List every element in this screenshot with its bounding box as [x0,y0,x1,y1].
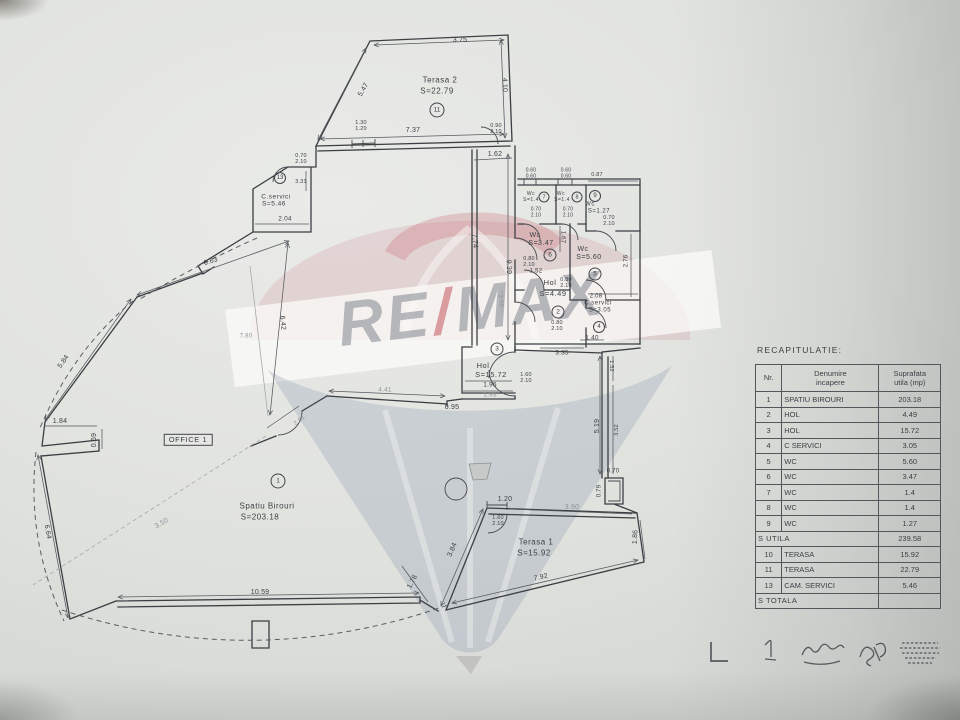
dim-corridor-wall: 7.74 [469,233,478,248]
dim-terasa1-door: 1.60 2.10 [492,515,504,527]
room-wc6-name: Wc [529,232,540,240]
room-number-2: 2 [552,306,565,319]
dim-terasa2-top: 3.75 [453,37,467,45]
room-cserv4-area: S=3.05 [589,308,611,315]
column-circle [445,478,467,500]
room-wc9-name: Wc [585,202,595,209]
dim-terasa2-door: 0.90 2.10 [490,123,502,135]
room-wc9-area: S=1.27 [588,209,610,216]
table-row: 6WC3.47 [756,469,941,485]
dim-left-7: 7.80 [240,334,252,341]
dim-left-6: 6.42 [277,315,286,330]
table-row: 4C SERVICI3.05 [756,438,941,454]
dim-cserv13-height: 3.31 [295,179,307,185]
dim-terasa2-right: 4.10 [500,78,508,93]
room-wc8-area: S=1.4 [554,198,570,204]
room-number-4: 4 [593,321,605,333]
dim-wc6-height: 1.67 [559,231,566,243]
room-number-5: 5 [589,268,602,281]
dim-terasa1-top: 3.90 [565,504,579,512]
dim-wc-window-2: 0.60 0.60 [561,168,572,179]
dim-wc7-door: 0.70 2.10 [531,207,542,218]
dim-corridor-width: 2.55 [496,294,504,307]
table-row: 1SPATIU BIROURI203.18 [756,392,941,408]
dim-terasa2-bottom: 7.37 [406,127,420,135]
room-cserv4-name: C.servici [584,301,612,308]
room-wc6-area: S=3.47 [528,240,553,248]
room-spatiu-area: S=203.18 [241,514,279,523]
table-row: 7WC1.4 [756,485,941,501]
dim-cserv13-width: 2.04 [278,215,291,222]
room-hol3-area: S=15.72 [475,371,507,379]
header-name: Denumire incapere [782,365,879,392]
room-cserv13-area: S=5.46 [262,200,286,207]
table-row: 5WC5.60 [756,454,941,470]
dim-wc9-top: 0.87 [591,172,603,178]
dim-step: 0.95 [445,404,459,412]
recap-table: RECAPITULATIE: Nr. Denumire incapere Sup… [755,345,947,609]
room-number-13: 13 [274,172,286,184]
dim-wc8-door: 0.70 2.10 [563,207,574,218]
room-terasa2-area: S=22.79 [420,88,454,97]
dim-wc9-door: 0.70 2.10 [603,215,615,227]
room-spatiu-name: Spatiu Birouri [239,503,294,512]
table-row: 9WC1.27 [756,516,941,532]
room-number-11: 11 [430,103,445,118]
dim-rightwall-2: 5.19 [594,419,602,433]
floorplan-photo: RE/MAX [0,0,960,720]
dim-terasa2-window: 1.30 1.20 [355,120,367,132]
room-wc5-area: S=5.60 [576,254,601,262]
dim-wc5-height: 2.76 [624,255,631,267]
table-row: 10TERASA15.92 [756,547,941,563]
room-number-9: 9 [589,190,601,202]
room-number-6: 6 [544,249,557,262]
dim-hol2-width: 1.52 [530,269,542,276]
room-number-7: 7 [539,192,550,203]
dim-terasa1-tick: 1.20 [498,496,512,504]
dim-opening-width: 3.35 [555,349,568,356]
dim-cserv4-top: 2.08 [590,294,602,301]
faint-lines [33,266,502,585]
room-wc7-area: S=1.4 [523,198,539,204]
header-area: Suprafata utila (mp) [879,365,941,392]
dim-bottom: 10.59 [251,589,270,597]
dim-hol2-bottom: 1.40 [585,334,598,341]
table-row-s-totala: S TOTALA [756,593,941,609]
table-row: 3HOL15.72 [756,423,941,439]
shaft-symbol [469,463,491,480]
table-row: 11TERASA22.79 [756,562,941,578]
recap-title: RECAPITULATIE: [757,345,947,355]
room-number-3: 3 [491,343,504,356]
room-number-1: 1 [271,474,286,489]
table-row-s-utila: S UTILA239.58 [756,531,941,547]
header-nr: Nr. [756,365,782,392]
table-header-row: Nr. Denumire incapere Suprafata utila (m… [756,365,941,392]
room-terasa2-name: Terasa 2 [423,77,458,86]
room-number-8: 8 [572,192,583,203]
dim-wc6-door: 0.80 2.10 [523,256,535,268]
table-row: 8WC1.4 [756,500,941,516]
room-terasa1-area: S=15.92 [517,550,551,559]
dim-left-3: 1.84 [53,418,67,426]
dim-corridor-length: 9.39 [504,260,512,275]
dim-cserv4-door: 0.80 2.10 [551,320,563,332]
dim-rightwall-3: 3.52 [614,424,620,436]
dim-column-width: 0.70 [607,469,619,476]
dim-left-4: 0.59 [91,433,99,447]
dim-terasa1-right: 1.86 [632,530,641,545]
dim-rightwall-1: 1.52 [608,360,614,372]
table-row: 13CAM. SERVICI5.46 [756,578,941,594]
dim-corridor-gap: 1.62 [488,151,502,159]
dim-hol3-bottom-1: 1.96 [483,381,496,388]
room-hol2-area: S=4.49 [540,290,567,298]
dim-wc-window-1: 0.60 0.60 [526,168,537,179]
doors-and-windows [273,127,620,533]
room-wc5-name: Wc [577,246,588,254]
room-hol2-name: Hol [544,279,557,287]
dim-column-height: 0.79 [597,485,604,497]
room-terasa1-name: Terasa 1 [519,539,554,548]
signature-stamps [711,641,940,667]
dim-hol3-bottom-2: 1.93 [483,391,496,398]
walls [41,35,644,648]
dim-office-top: 4.41 [378,386,391,393]
table-row: 2HOL4.49 [756,407,941,423]
dim-hol3-door: 1.60 2.10 [520,372,532,384]
office-label: OFFICE 1 [164,434,213,446]
dim-cserv13-door: 0.70 2.10 [295,153,307,165]
dim-wc5-door: 0.80 2.10 [560,277,572,289]
